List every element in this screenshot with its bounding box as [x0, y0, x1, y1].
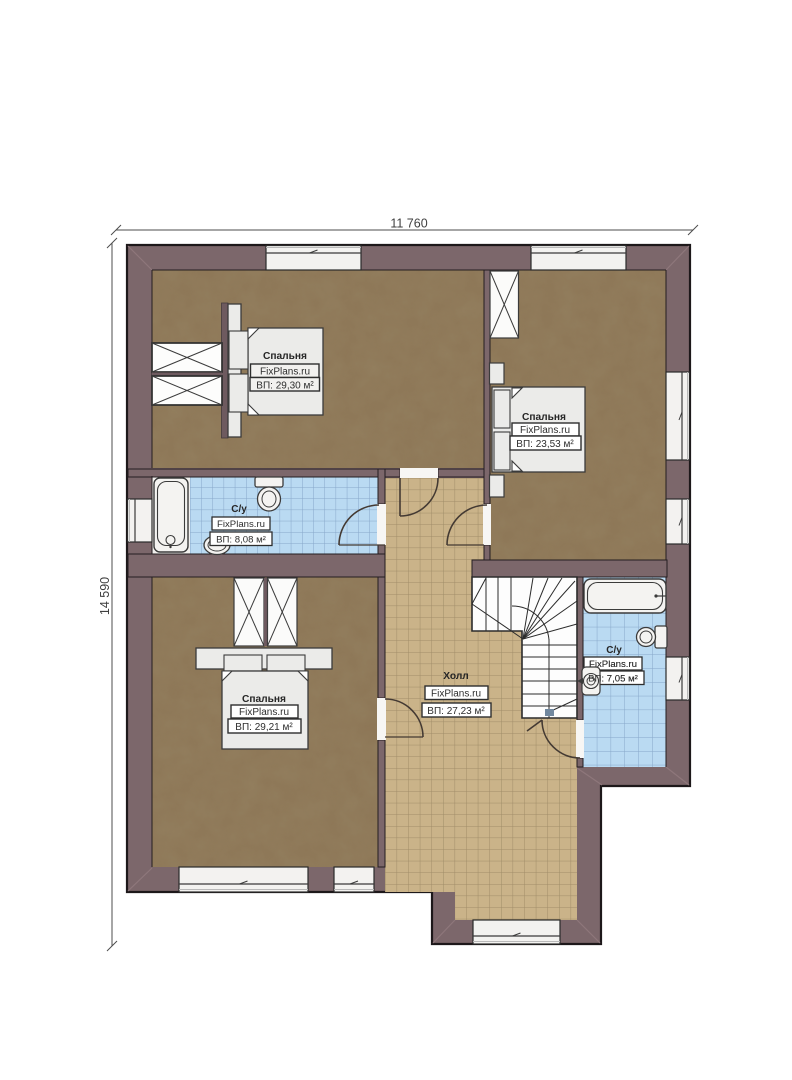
svg-text:11 760: 11 760	[390, 217, 427, 231]
svg-text:Спальня: Спальня	[242, 694, 286, 705]
svg-text:Спальня: Спальня	[522, 412, 566, 423]
svg-text:ВП: 7,05 м²: ВП: 7,05 м²	[588, 674, 639, 685]
svg-text:Холл: Холл	[443, 671, 469, 682]
svg-text:ВП: 29,21 м²: ВП: 29,21 м²	[235, 722, 293, 733]
svg-text:FixPlans.ru: FixPlans.ru	[520, 425, 570, 436]
svg-text:С/у: С/у	[231, 504, 247, 515]
svg-text:С/у: С/у	[606, 645, 622, 656]
svg-text:FixPlans.ru: FixPlans.ru	[431, 689, 481, 700]
svg-text:FixPlans.ru: FixPlans.ru	[589, 659, 637, 670]
svg-text:ВП: 27,23 м²: ВП: 27,23 м²	[427, 706, 485, 717]
svg-text:ВП: 23,53 м²: ВП: 23,53 м²	[516, 439, 574, 450]
svg-text:FixPlans.ru: FixPlans.ru	[217, 519, 265, 530]
svg-text:ВП: 29,30 м²: ВП: 29,30 м²	[256, 381, 314, 392]
svg-text:FixPlans.ru: FixPlans.ru	[260, 367, 310, 378]
svg-text:14 590: 14 590	[98, 577, 112, 615]
svg-text:FixPlans.ru: FixPlans.ru	[239, 707, 289, 718]
svg-text:Спальня: Спальня	[263, 351, 307, 362]
svg-text:ВП: 8,08 м²: ВП: 8,08 м²	[216, 535, 267, 546]
